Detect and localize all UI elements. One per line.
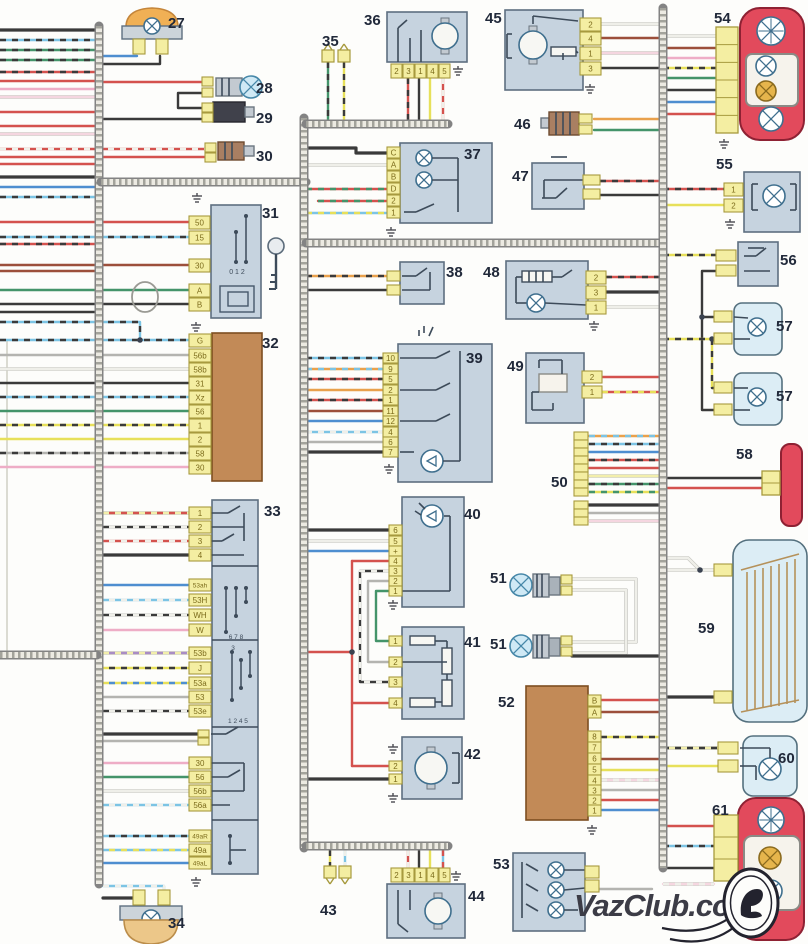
component-label: 44 (468, 888, 485, 905)
wire-dash (0, 322, 140, 338)
component-label: 54 (714, 10, 731, 27)
pin-label: 53a (193, 679, 207, 688)
pin (579, 125, 592, 134)
ground-icon (191, 322, 201, 331)
component-label: 31 (262, 205, 279, 222)
component-label: 43 (320, 902, 337, 919)
component-label: 60 (778, 750, 795, 767)
ground-icon (192, 193, 202, 202)
pin-label: G (197, 336, 203, 345)
pin-label: 8 (592, 732, 597, 741)
pin-label: 2 (394, 871, 399, 880)
pin-label: W (196, 626, 204, 635)
pin (583, 175, 600, 185)
pin-label: 31 (196, 379, 205, 388)
component-label: 36 (364, 12, 381, 29)
ground-icon (388, 793, 398, 802)
pin-label: 49aR (192, 833, 208, 840)
component-30: 30 (205, 142, 273, 165)
component-32: G56b58b31Xz5612583032 (189, 333, 279, 481)
pin-label: 3 (406, 871, 411, 880)
component-label: 51 (490, 636, 507, 653)
component-52: BA8765432152 (498, 686, 601, 820)
wire (360, 571, 389, 682)
inner-text: 0 1 2 (229, 269, 245, 276)
pin-label: 7 (388, 448, 393, 457)
component-56: 56 (716, 242, 797, 286)
resistor-icon (410, 636, 435, 645)
pin-label: 3 (592, 786, 597, 795)
pin-label: 4 (592, 776, 597, 785)
component-label: 52 (498, 694, 515, 711)
pin (574, 488, 588, 496)
component-31: 0 1 2501530AB31 (189, 205, 284, 318)
pin-label: 53H (193, 596, 208, 605)
pin (718, 760, 738, 772)
component-box (506, 261, 588, 319)
pin (561, 636, 572, 645)
pin-label: 6 (388, 438, 393, 447)
motor-icon (519, 31, 547, 59)
component-57: 57 (714, 303, 793, 355)
part-shape (213, 102, 245, 122)
component-37: CABD2137 (387, 143, 492, 223)
pin-label: 2 (592, 796, 597, 805)
wire (306, 148, 387, 153)
component-41: 123441 (389, 627, 481, 719)
pin-label: 4 (430, 67, 435, 76)
wire (0, 322, 140, 338)
pin-label: 5 (388, 375, 393, 384)
junction-dot (137, 337, 143, 343)
pin-label: 10 (386, 354, 395, 363)
pin-label: 3 (406, 67, 411, 76)
pin (205, 143, 216, 152)
pin-label: 56 (196, 407, 205, 416)
pin (714, 333, 732, 344)
pin (202, 103, 213, 112)
pin-label: 2 (731, 201, 736, 210)
pin (387, 271, 400, 281)
pin-label: 56a (193, 801, 207, 810)
component-45: 241345 (485, 10, 601, 90)
component-box (400, 262, 444, 304)
motor-icon (415, 752, 447, 784)
wiring-diagram: 272829300 1 2501530AB31G56b58b31Xz561258… (0, 0, 808, 944)
part-shape (549, 638, 560, 656)
motor-icon (432, 23, 458, 49)
pin-label: B (592, 696, 597, 705)
component-47: 47 (512, 157, 600, 209)
ground-icon (384, 464, 394, 473)
ground-icon (388, 744, 398, 753)
pin (202, 113, 213, 122)
part-shape (533, 635, 549, 658)
pin (714, 404, 732, 415)
component-label: 42 (464, 746, 481, 763)
part-shape (781, 444, 802, 526)
component-label: 28 (256, 80, 273, 97)
pin-label: 4 (393, 699, 398, 708)
inner-text: 6 7 8 (229, 634, 244, 641)
pin-label: 53b (193, 649, 207, 658)
pin-label: 11 (386, 407, 395, 416)
pin (133, 890, 145, 905)
pin-label: 4 (430, 871, 435, 880)
pin (202, 77, 213, 86)
component-box (532, 163, 584, 209)
pin-label: 5 (592, 765, 597, 774)
part-shape (539, 374, 567, 392)
pin-label: 2 (388, 386, 393, 395)
motor-icon (425, 898, 451, 924)
component-label: 51 (490, 570, 507, 587)
ground-icon (453, 66, 463, 75)
wire-loop (132, 282, 158, 312)
pin (714, 311, 732, 322)
pin-label: 6 (592, 754, 597, 763)
component-51b: 51 (490, 635, 572, 658)
component-label: 53 (493, 856, 510, 873)
pin-label: + (393, 547, 398, 556)
pin (574, 472, 588, 480)
resistor-icon (410, 698, 435, 707)
junction-dot (697, 567, 703, 573)
component-label: 39 (466, 350, 483, 367)
component-label: 56 (780, 252, 797, 269)
connector-strip (714, 815, 738, 881)
wire (178, 93, 202, 108)
ground-icon (589, 321, 599, 330)
pin-label: 1 (393, 637, 398, 646)
component-label: 59 (698, 620, 715, 637)
pin-label: 1 (388, 396, 393, 405)
pin-label: 1 (198, 509, 203, 518)
component-57b: 57 (714, 373, 793, 425)
component-label: 55 (716, 156, 733, 173)
pin-label: 58b (193, 365, 207, 374)
pin-label: 2 (590, 373, 595, 382)
component-label: 29 (256, 110, 273, 127)
component-label: 49 (507, 358, 524, 375)
schematic-line (429, 327, 433, 336)
pin-label: 53ah (193, 582, 208, 589)
component-box (733, 540, 807, 722)
part-shape (541, 118, 549, 128)
pin (202, 88, 213, 97)
component-label: 50 (551, 474, 568, 491)
pin-label: B (197, 300, 202, 309)
part-shape (549, 577, 560, 595)
pin-label: 56 (196, 773, 205, 782)
wire-dash (360, 571, 389, 682)
component-label: 33 (264, 503, 281, 520)
ground-icon (719, 139, 729, 148)
pin-label: 30 (196, 463, 205, 472)
component-label: 40 (464, 506, 481, 523)
component-44: 2314544 (387, 868, 485, 938)
components: 272829300 1 2501530AB31G56b58b31Xz561258… (120, 8, 807, 944)
pin-label: 1 (594, 303, 599, 312)
resistor-icon (442, 680, 452, 706)
component-36: 2314536 (364, 12, 467, 78)
pin-label: 1 (393, 775, 398, 784)
resistor-icon (522, 271, 552, 282)
pin (561, 586, 572, 595)
pin (583, 189, 600, 199)
part-shape (245, 107, 254, 117)
component-28: 28 (202, 76, 273, 98)
pin (714, 382, 732, 393)
component-48: 23148 (483, 261, 606, 319)
pin (561, 575, 572, 584)
pin (714, 564, 732, 576)
pin-label: 2 (594, 273, 599, 282)
pin (718, 742, 738, 754)
pin-label: 30 (195, 261, 204, 270)
pin-label: 1 (592, 806, 597, 815)
pin (133, 39, 145, 54)
pin (574, 509, 588, 517)
pin-label: 1 (198, 421, 203, 430)
pin (716, 250, 736, 261)
pin-label: 49a (193, 846, 207, 855)
component-label: 57 (776, 318, 793, 335)
component-label: 30 (256, 148, 273, 165)
pin-label: 2 (393, 762, 398, 771)
component-54: 54 (714, 8, 804, 140)
inner-text: 1 2 4 5 (228, 718, 248, 725)
pin-label: 2 (393, 577, 398, 586)
component-51: 51 (490, 570, 572, 597)
pin-label: 1 (588, 49, 593, 58)
component-46: 46 (514, 112, 592, 135)
pin-label: 4 (588, 34, 593, 43)
pin (579, 114, 592, 123)
wire-layer (0, 24, 762, 902)
pin-label: 1 (393, 587, 398, 596)
pin-label: B (391, 172, 396, 181)
pin-label: 5 (442, 871, 447, 880)
pin-label: 2 (198, 435, 203, 444)
ground-icon (587, 825, 597, 834)
pin-label: 1 (731, 185, 736, 194)
buzzer-icon (421, 450, 443, 472)
pin (561, 647, 572, 656)
component-43: 43 (320, 866, 351, 919)
pin-label: 15 (195, 233, 204, 242)
connector-fork (339, 866, 351, 878)
component-39: 109521111246739 (383, 326, 492, 482)
component-55: 1255 (716, 156, 800, 232)
pin-label: 2 (391, 196, 396, 205)
pin-label: A (391, 160, 397, 169)
pin-label: 9 (388, 365, 393, 374)
component-50: 50 (551, 432, 588, 525)
pin-label: 2 (394, 67, 399, 76)
connector-fork (324, 866, 336, 878)
component-label: 37 (464, 146, 481, 163)
wiring-diagram-canvas: 272829300 1 2501530AB31G56b58b31Xz561258… (0, 0, 808, 944)
component-box (212, 333, 262, 481)
component-label: 61 (712, 802, 729, 819)
pin-label: 56b (193, 351, 207, 360)
pin-label: 12 (386, 417, 395, 426)
junction-dot (699, 314, 705, 320)
pin-label: 4 (198, 551, 203, 560)
pin-label: 58 (196, 449, 205, 458)
pin (198, 730, 209, 737)
component-label: 27 (168, 15, 185, 32)
pin-label: 1 (391, 208, 396, 217)
pin-label: 1 (590, 388, 595, 397)
part-shape (244, 146, 254, 156)
pin (574, 517, 588, 525)
pin-label: 1 (418, 871, 423, 880)
component-box (212, 500, 258, 874)
pin-label: 53 (196, 693, 205, 702)
wire (368, 581, 389, 662)
pin (156, 39, 168, 54)
pin-label: 49aL (193, 860, 208, 867)
pin-label: WH (193, 611, 207, 620)
pin-label: 2 (588, 20, 593, 29)
component-label: 35 (322, 33, 339, 50)
pin (574, 464, 588, 472)
component-27: 27 (122, 8, 185, 54)
component-label: 45 (485, 10, 502, 27)
pin-label: 53e (193, 707, 207, 716)
component-38: 38 (387, 262, 463, 304)
pin (205, 153, 216, 162)
pin-label: 2 (393, 658, 398, 667)
pin (574, 501, 588, 509)
component-59: 59 (698, 540, 807, 722)
ground-icon (191, 877, 201, 886)
pin-label: 6 (393, 526, 398, 535)
pin-label: D (391, 184, 397, 193)
pin (574, 480, 588, 488)
connector-fork (322, 50, 334, 62)
component-label: 57 (776, 388, 793, 405)
resistor-icon (442, 648, 452, 674)
component-label: 48 (483, 264, 500, 281)
pin (198, 738, 209, 745)
pin-label: 30 (196, 759, 205, 768)
connector-fork (338, 50, 350, 62)
pin-label: 4 (393, 557, 398, 566)
component-29: 29 (202, 102, 273, 127)
pin-label: 3 (588, 64, 593, 73)
junction-dot (349, 649, 355, 655)
pin-label: 3 (393, 567, 398, 576)
pin-label: 1 (418, 67, 423, 76)
schematic-line (734, 317, 748, 318)
wire (376, 591, 389, 641)
pin-label: C (391, 148, 397, 157)
component-label: 46 (514, 116, 531, 133)
component-label: 41 (464, 634, 481, 651)
pin (387, 285, 400, 295)
pin (574, 456, 588, 464)
part-shape (218, 142, 244, 160)
pin (574, 432, 588, 440)
pin-label: 3 (393, 678, 398, 687)
part-shape (268, 238, 284, 254)
ground-icon (725, 219, 735, 228)
part-shape (549, 112, 579, 135)
component-label: 47 (512, 168, 529, 185)
component-35: 35 (322, 33, 350, 62)
component-box (526, 686, 588, 820)
pin-label: 7 (592, 743, 597, 752)
pin-label: J (198, 664, 202, 673)
ground-icon (388, 600, 398, 609)
pin-label: A (197, 286, 203, 295)
component-40: 65+432140 (389, 497, 481, 607)
component-label: 32 (262, 335, 279, 352)
component-42: 2142 (389, 737, 481, 799)
pin-label: A (592, 708, 598, 717)
component-33: 6 7 831 2 4 5123453ah53HWHW53bJ53a5353e3… (189, 500, 281, 874)
component-58: 58 (736, 444, 802, 526)
pin (585, 866, 599, 878)
ground-icon (451, 871, 461, 880)
pin-label: 2 (198, 523, 203, 532)
pin (716, 265, 736, 276)
pin-label: 5 (393, 537, 398, 546)
pin (574, 440, 588, 448)
component-60: 60 (718, 736, 797, 796)
ground-icon (585, 84, 595, 93)
pin-label: Xz (195, 393, 204, 402)
pin (574, 448, 588, 456)
part-shape (533, 574, 549, 597)
pin-label: 3 (198, 537, 203, 546)
component-label: 58 (736, 446, 753, 463)
ground-icon (386, 227, 396, 236)
pin-label: 3 (594, 288, 599, 297)
pin-label: 50 (195, 218, 204, 227)
component-49: 2149 (507, 353, 602, 423)
component-label: 34 (168, 915, 185, 932)
pin (714, 691, 732, 703)
pin (158, 890, 170, 905)
pin-label: 56b (193, 787, 207, 796)
pin-label: 4 (388, 428, 393, 437)
component-label: 38 (446, 264, 463, 281)
pin-label: 5 (442, 67, 447, 76)
